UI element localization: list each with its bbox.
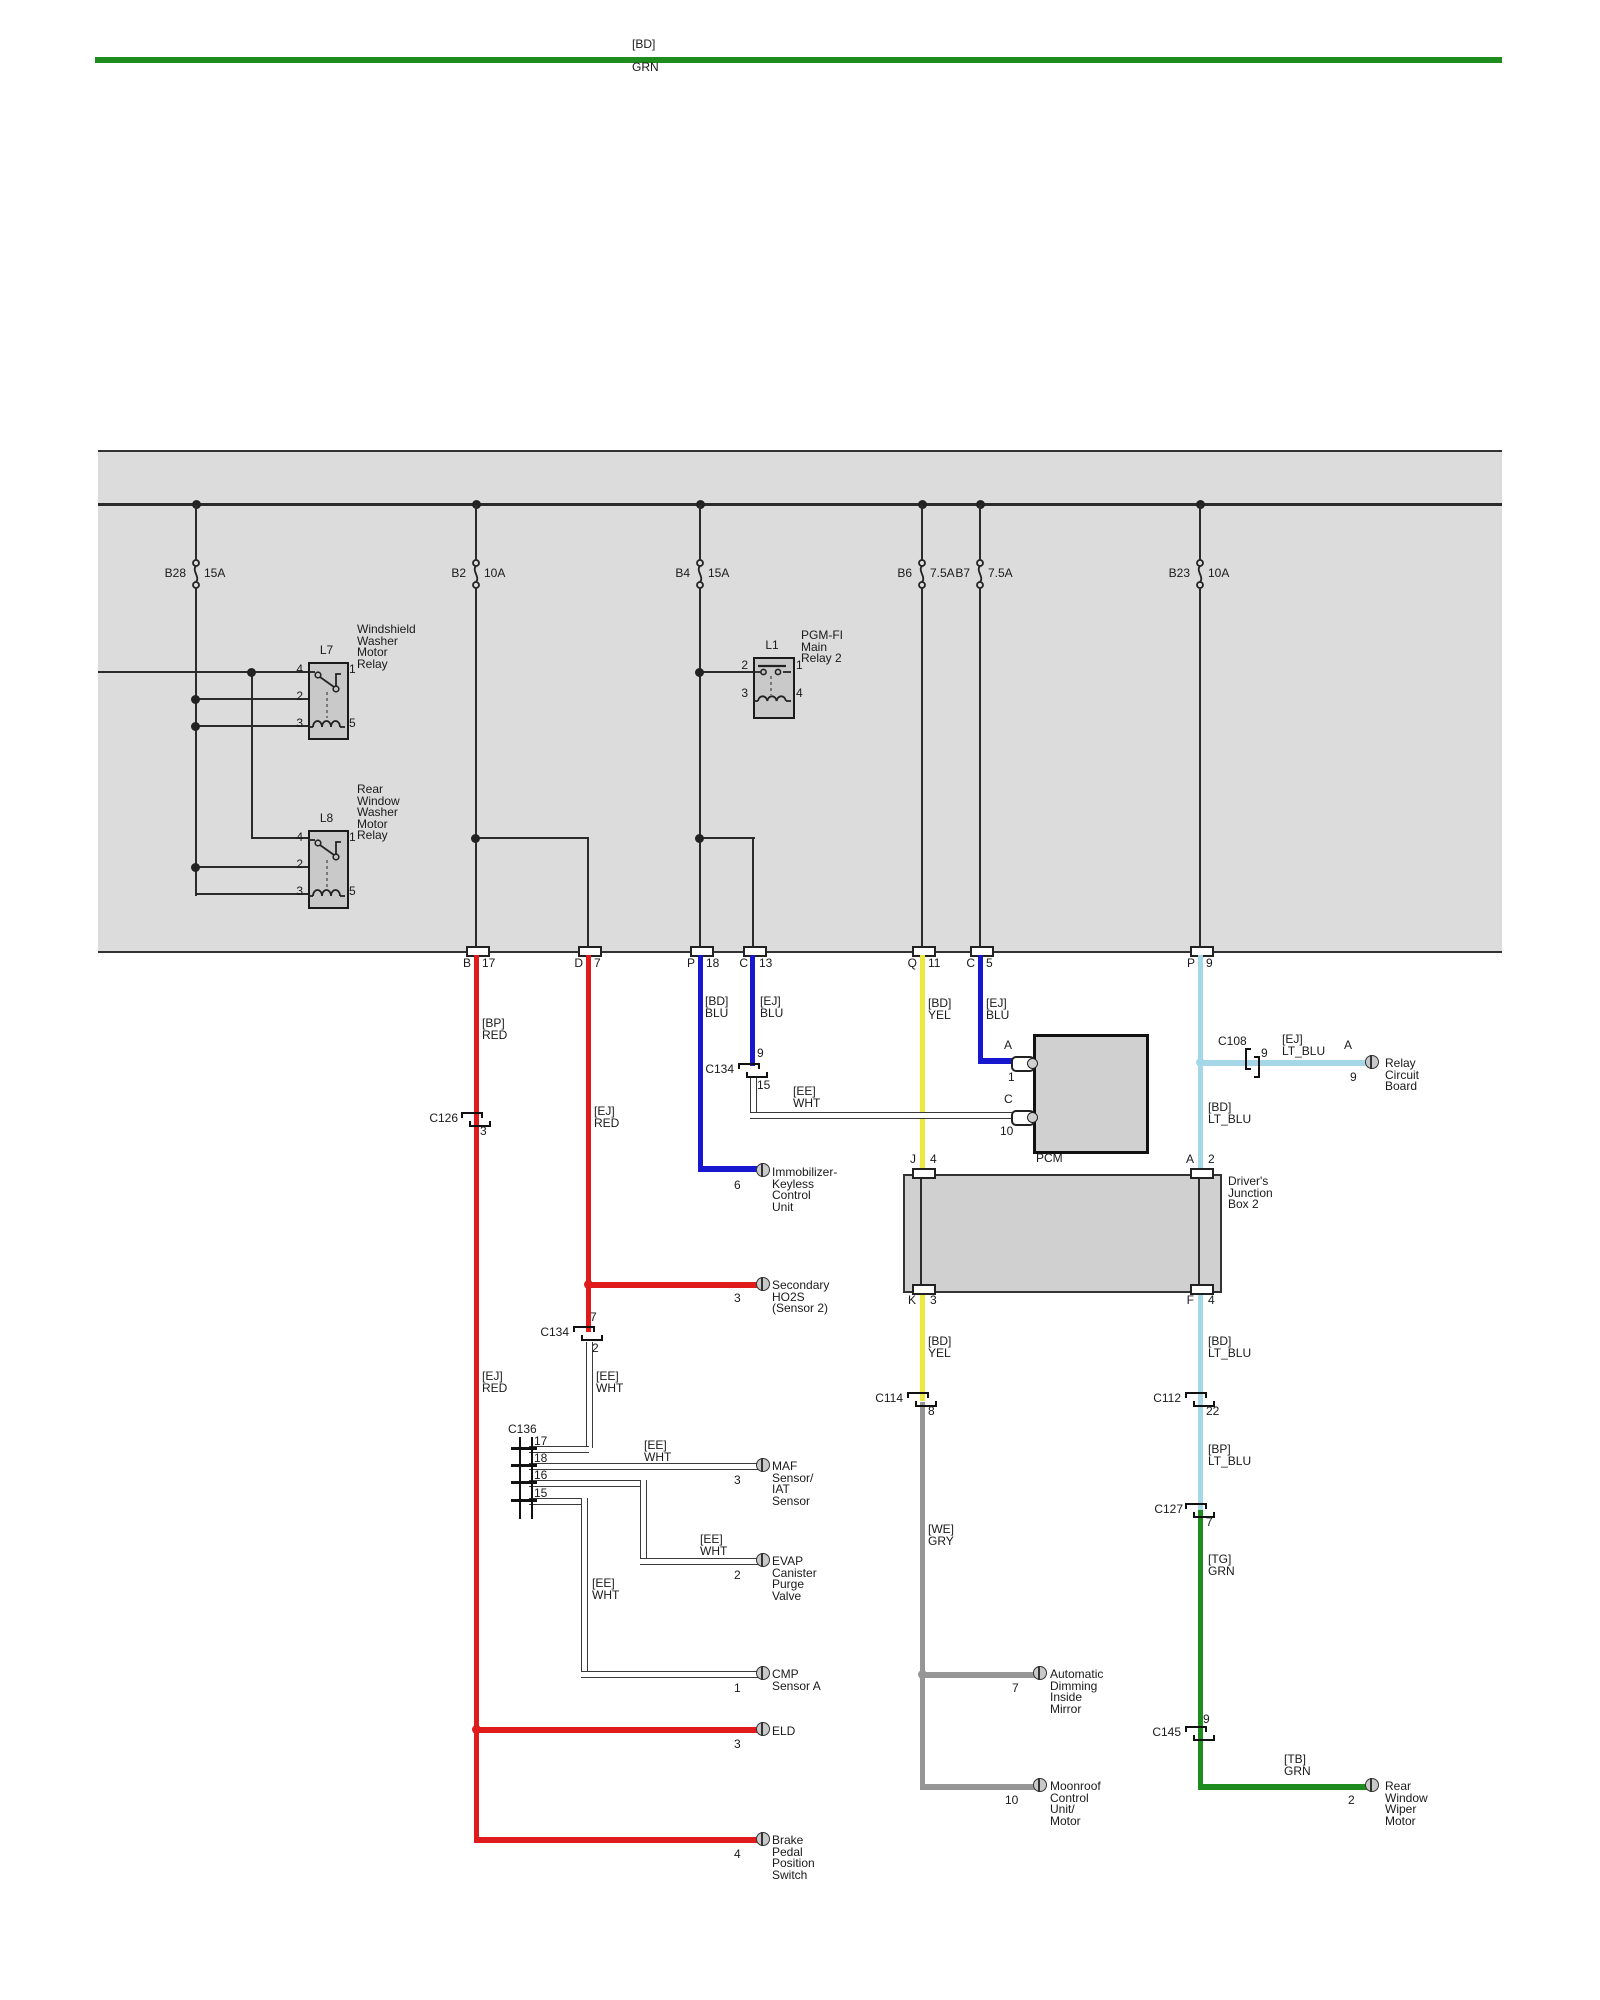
fuse-rating: 10A xyxy=(1208,568,1229,580)
wire-label: [WE]GRY xyxy=(928,1524,954,1547)
component-name: CMP Sensor A xyxy=(772,1669,821,1692)
wire-label: [EJ]RED xyxy=(594,1106,619,1129)
wire-segment xyxy=(475,837,589,839)
wiring-diagram: [BD] GRN B28 15A B2 10A B4 15A B6 7.5A B… xyxy=(0,0,1600,2000)
relay-pin: 5 xyxy=(349,718,356,730)
fuse-id: B7 xyxy=(942,568,970,580)
wire-yellow xyxy=(920,955,925,1170)
wire-segment xyxy=(475,588,477,946)
wire-gray xyxy=(920,1672,1036,1678)
wire-color: WHT xyxy=(592,1590,619,1602)
wire-segment xyxy=(920,1178,922,1286)
wire-segment xyxy=(251,671,253,839)
connector-label: C136 xyxy=(508,1424,537,1436)
wire-white xyxy=(586,1342,593,1448)
connector-pin: 15 xyxy=(534,1488,547,1500)
wire-color: WHT xyxy=(644,1452,671,1464)
wire-segment xyxy=(699,837,755,839)
wire-white xyxy=(750,1112,1015,1119)
terminal-icon xyxy=(756,1277,770,1291)
connector-pin: 8 xyxy=(928,1406,935,1418)
relay-pin: 3 xyxy=(283,886,303,898)
wire-color: LT_BLU xyxy=(1208,1348,1251,1360)
wire-red xyxy=(474,1837,761,1843)
component-pin: 4 xyxy=(734,1849,741,1861)
wire-segment xyxy=(752,837,754,946)
connector-pin: 22 xyxy=(1206,1406,1219,1418)
component-pin: 2 xyxy=(1348,1795,1355,1807)
wire-color: YEL xyxy=(928,1348,951,1360)
wire-gray xyxy=(920,1784,1036,1790)
wire-label: [BD]YEL xyxy=(928,1336,951,1359)
wire-color: RED xyxy=(482,1383,507,1395)
wire-segment xyxy=(195,588,197,896)
fuse-rating: 15A xyxy=(708,568,729,580)
wire-label: [BD] GRN xyxy=(632,27,659,85)
wire-color: RED xyxy=(482,1030,507,1042)
component-pin: 3 xyxy=(734,1739,741,1751)
wire-white xyxy=(640,1480,647,1562)
fuse-id: B2 xyxy=(430,568,466,580)
exit-pin-number: 9 xyxy=(1206,958,1213,970)
relay-id: L7 xyxy=(308,645,345,657)
exit-pin-number: 7 xyxy=(594,958,601,970)
wire-label: [BD]LT_BLU xyxy=(1208,1102,1251,1125)
terminal-icon xyxy=(1033,1666,1047,1680)
fuse-rating: 10A xyxy=(484,568,505,580)
junction-box-label: Driver's Junction Box 2 xyxy=(1228,1176,1273,1211)
terminal-icon xyxy=(1033,1778,1047,1792)
relay-internals-icon xyxy=(308,830,345,905)
wire-segment xyxy=(98,671,310,673)
exit-pin-number: 11 xyxy=(928,958,940,970)
terminal-icon xyxy=(756,1163,770,1177)
component-name: Brake Pedal Position Switch xyxy=(772,1835,815,1881)
junction-dot xyxy=(191,695,200,704)
relay-id: L1 xyxy=(753,640,791,652)
connector-pin: 18 xyxy=(534,1453,547,1465)
junction-dot xyxy=(695,834,704,843)
fuse-icon xyxy=(468,558,484,590)
wire-color: LT_BLU xyxy=(1208,1114,1251,1126)
wire-white xyxy=(750,1076,757,1114)
connector-pin: 9 xyxy=(1203,1714,1210,1726)
wire-label: [BP]RED xyxy=(482,1018,507,1041)
wire-white xyxy=(581,1498,588,1676)
jb-pin-number: 2 xyxy=(1208,1154,1215,1166)
junction-box xyxy=(903,1174,1222,1293)
wire-label: [EE]WHT xyxy=(592,1578,619,1601)
terminal-icon xyxy=(756,1666,770,1680)
pcm-pin-circle xyxy=(1027,1112,1038,1123)
wire-color: WHT xyxy=(596,1383,623,1395)
connector-c108 xyxy=(1245,1048,1260,1078)
component-pin: 1 xyxy=(734,1683,741,1695)
wire-label: [EE]WHT xyxy=(700,1534,727,1557)
wire-color: WHT xyxy=(793,1098,820,1110)
pcm-pin-number: 1 xyxy=(1008,1072,1015,1084)
terminal-icon xyxy=(756,1832,770,1846)
pcm-pin-circle xyxy=(1027,1058,1038,1069)
junction-dot xyxy=(471,834,480,843)
fuse-id: B4 xyxy=(654,568,690,580)
wire-light-blue xyxy=(1198,1060,1368,1066)
wire-green xyxy=(1198,1510,1203,1788)
component-pin-letter: A xyxy=(1344,1040,1352,1052)
junction-dot xyxy=(695,668,704,677)
connector-pin: 16 xyxy=(534,1470,547,1482)
wire-white xyxy=(640,1558,759,1565)
fuse-icon xyxy=(1192,558,1208,590)
component-name: Moonroof Control Unit/ Motor xyxy=(1050,1781,1101,1827)
exit-pin-number: 5 xyxy=(986,958,993,970)
wire-segment xyxy=(587,837,589,946)
wire-segment xyxy=(979,505,981,560)
component-name: ELD xyxy=(772,1726,795,1738)
wire-color: GRN xyxy=(1284,1766,1311,1778)
wire-label: [BD]YEL xyxy=(928,998,951,1021)
wire-red xyxy=(474,955,479,1840)
wire-color: WHT xyxy=(700,1546,727,1558)
wire-color: GRN xyxy=(1208,1566,1235,1578)
exit-pin-number: 13 xyxy=(759,958,772,970)
jb-pin-number: 4 xyxy=(1208,1295,1215,1307)
component-pin: 3 xyxy=(734,1475,741,1487)
fuse-id: B23 xyxy=(1154,568,1190,580)
relay-pin: 1 xyxy=(349,664,356,676)
connector-pin: 7 xyxy=(590,1312,597,1324)
wire-segment xyxy=(699,505,701,560)
exit-pin-letter: B xyxy=(455,958,471,970)
green-bus-wire xyxy=(95,57,1502,63)
connector-label: C112 xyxy=(1139,1393,1181,1405)
connector-pin: 7 xyxy=(1206,1517,1213,1529)
exit-pin-letter: C xyxy=(732,958,748,970)
wire-color: RED xyxy=(594,1118,619,1130)
fuse-id: B6 xyxy=(880,568,912,580)
junction-dot xyxy=(918,1670,927,1679)
fuse-icon xyxy=(188,558,204,590)
wire-blue xyxy=(750,955,755,1066)
component-name: Immobilizer- Keyless Control Unit xyxy=(772,1167,837,1213)
connector-c134-engine xyxy=(573,1326,603,1341)
connector-pin: 9 xyxy=(757,1048,764,1060)
relay-pin: 3 xyxy=(283,718,303,730)
wire-color: BLU xyxy=(705,1008,728,1020)
relay-name: PGM-FI Main Relay 2 xyxy=(801,630,843,665)
connector-label: C134 xyxy=(527,1327,569,1339)
wire-label: [EJ]BLU xyxy=(986,998,1009,1021)
wire-label: [TG]GRN xyxy=(1208,1554,1235,1577)
terminal-icon xyxy=(756,1553,770,1567)
terminal-icon xyxy=(756,1458,770,1472)
wire-blue xyxy=(698,1166,758,1172)
component-name: EVAP Canister Purge Valve xyxy=(772,1556,817,1602)
component-name: Rear Window Wiper Motor xyxy=(1385,1781,1428,1827)
wire-color: GRN xyxy=(632,62,659,74)
fuse-id: B28 xyxy=(150,568,186,580)
wire-color: LT_BLU xyxy=(1282,1046,1325,1058)
connector-label: C114 xyxy=(861,1393,903,1405)
wire-segment xyxy=(1199,588,1201,946)
exit-pin-letter: Q xyxy=(901,958,917,970)
exit-pin-letter: P xyxy=(679,958,695,970)
exit-pin-letter: C xyxy=(959,958,975,970)
wire-red xyxy=(586,1282,759,1288)
connector-label: C134 xyxy=(692,1064,734,1076)
relay-internals-icon xyxy=(308,662,345,736)
pcm-pin-letter: A xyxy=(1004,1040,1012,1052)
connector-label: C127 xyxy=(1141,1504,1183,1516)
wire-color: YEL xyxy=(928,1010,951,1022)
exit-pin-number: 18 xyxy=(706,958,719,970)
wire-segment xyxy=(475,505,477,560)
wire-tag: [BD] xyxy=(632,39,659,51)
jb-pin-letter: A xyxy=(1178,1154,1194,1166)
relay-pin: 3 xyxy=(728,688,748,700)
jb-pin-number: 4 xyxy=(930,1154,937,1166)
relay-internals-icon xyxy=(753,657,791,715)
wire-green xyxy=(1198,1784,1370,1790)
exit-pin-letter: D xyxy=(567,958,583,970)
wire-label: [EE]WHT xyxy=(793,1086,820,1109)
wire-segment xyxy=(1199,505,1201,560)
component-name: Secondary HO2S (Sensor 2) xyxy=(772,1280,829,1315)
relay-name: Windshield Washer Motor Relay xyxy=(357,624,416,670)
power-bus xyxy=(98,503,1502,506)
junction-dot xyxy=(191,863,200,872)
wire-label: [EE]WHT xyxy=(596,1371,623,1394)
connector-c145 xyxy=(1185,1726,1215,1741)
terminal-icon xyxy=(756,1722,770,1736)
pcm-pin-number: 10 xyxy=(1000,1126,1013,1138)
exit-pin-letter: P xyxy=(1179,958,1195,970)
wire-label: [EJ]BLU xyxy=(760,996,783,1019)
connector-c134-pcm xyxy=(738,1063,768,1078)
wire-color: BLU xyxy=(760,1008,783,1020)
connector-label: C126 xyxy=(416,1113,458,1125)
exit-pin-number: 17 xyxy=(482,958,495,970)
jb-pin-letter: K xyxy=(900,1295,916,1307)
junction-dot xyxy=(247,668,256,677)
wire-segment xyxy=(699,588,701,946)
junction-dot xyxy=(191,722,200,731)
wire-gray xyxy=(920,1402,925,1790)
relay-pin: 4 xyxy=(283,664,303,676)
wire-label: [BD]BLU xyxy=(705,996,728,1019)
wire-red xyxy=(586,955,591,1332)
jb-pin-letter: J xyxy=(900,1154,916,1166)
pcm-pin-letter: C xyxy=(1004,1094,1013,1106)
wire-label: [EJ]LT_BLU xyxy=(1282,1034,1325,1057)
wire-red xyxy=(474,1727,759,1733)
terminal-icon xyxy=(1365,1055,1379,1069)
relay-pin: 1 xyxy=(796,660,803,672)
connector-label: C145 xyxy=(1139,1727,1181,1739)
wire-label: [TB]GRN xyxy=(1284,1754,1311,1777)
fuse-icon xyxy=(914,558,930,590)
component-pin: 9 xyxy=(1350,1072,1357,1084)
connector-bar xyxy=(912,1168,936,1179)
fuse-rating: 15A xyxy=(204,568,225,580)
wire-color: GRY xyxy=(928,1536,954,1548)
junction-dot xyxy=(1196,1058,1205,1067)
wire-white xyxy=(529,1463,759,1470)
wire-yellow xyxy=(920,1293,925,1401)
wire-label: [EJ]RED xyxy=(482,1371,507,1394)
relay-pin: 4 xyxy=(796,688,803,700)
wire-segment xyxy=(921,588,923,946)
jb-pin-letter: F xyxy=(1178,1295,1194,1307)
component-name: Relay Circuit Board xyxy=(1385,1058,1419,1093)
connector-pin: 9 xyxy=(1261,1048,1268,1060)
terminal-icon xyxy=(1365,1778,1379,1792)
component-name: Automatic Dimming Inside Mirror xyxy=(1050,1669,1103,1715)
component-name: MAF Sensor/ IAT Sensor xyxy=(772,1461,813,1507)
connector-pin: 17 xyxy=(534,1436,547,1448)
wire-segment xyxy=(195,505,197,560)
relay-pin: 1 xyxy=(349,832,356,844)
jb-pin-number: 3 xyxy=(930,1295,937,1307)
component-pin: 7 xyxy=(1012,1683,1019,1695)
relay-pin: 4 xyxy=(283,832,303,844)
wire-color: LT_BLU xyxy=(1208,1456,1251,1468)
junction-dot xyxy=(472,1725,481,1734)
component-pin: 6 xyxy=(734,1180,741,1192)
pcm-label: PCM xyxy=(1036,1153,1063,1165)
component-pin: 10 xyxy=(1005,1795,1018,1807)
component-pin: 2 xyxy=(734,1570,741,1582)
component-pin: 3 xyxy=(734,1293,741,1305)
connector-bar xyxy=(1190,1168,1214,1179)
relay-name: Rear Window Washer Motor Relay xyxy=(357,784,400,842)
wire-label: [BD]LT_BLU xyxy=(1208,1336,1251,1359)
wire-color: BLU xyxy=(986,1010,1009,1022)
wire-label: [BP]LT_BLU xyxy=(1208,1444,1251,1467)
pcm-box xyxy=(1033,1034,1149,1154)
relay-pin: 2 xyxy=(728,660,748,672)
wire-segment xyxy=(1198,1178,1200,1286)
fuse-icon xyxy=(692,558,708,590)
wire-white xyxy=(581,1671,759,1678)
relay-pin: 2 xyxy=(283,859,303,871)
wire-segment xyxy=(921,505,923,560)
relay-pin: 5 xyxy=(349,886,356,898)
relay-pin: 2 xyxy=(283,691,303,703)
connector-pin: 15 xyxy=(757,1080,770,1092)
connector-pin: 2 xyxy=(592,1343,599,1355)
fuse-icon xyxy=(972,558,988,590)
connector-pin: 3 xyxy=(480,1126,487,1138)
wire-segment xyxy=(979,588,981,946)
wire-label: [EE]WHT xyxy=(644,1440,671,1463)
connector-label: C108 xyxy=(1218,1036,1247,1048)
wire-blue xyxy=(978,955,983,1062)
relay-id: L8 xyxy=(308,813,345,825)
fuse-rating: 7.5A xyxy=(988,568,1013,580)
junction-dot xyxy=(584,1280,593,1289)
